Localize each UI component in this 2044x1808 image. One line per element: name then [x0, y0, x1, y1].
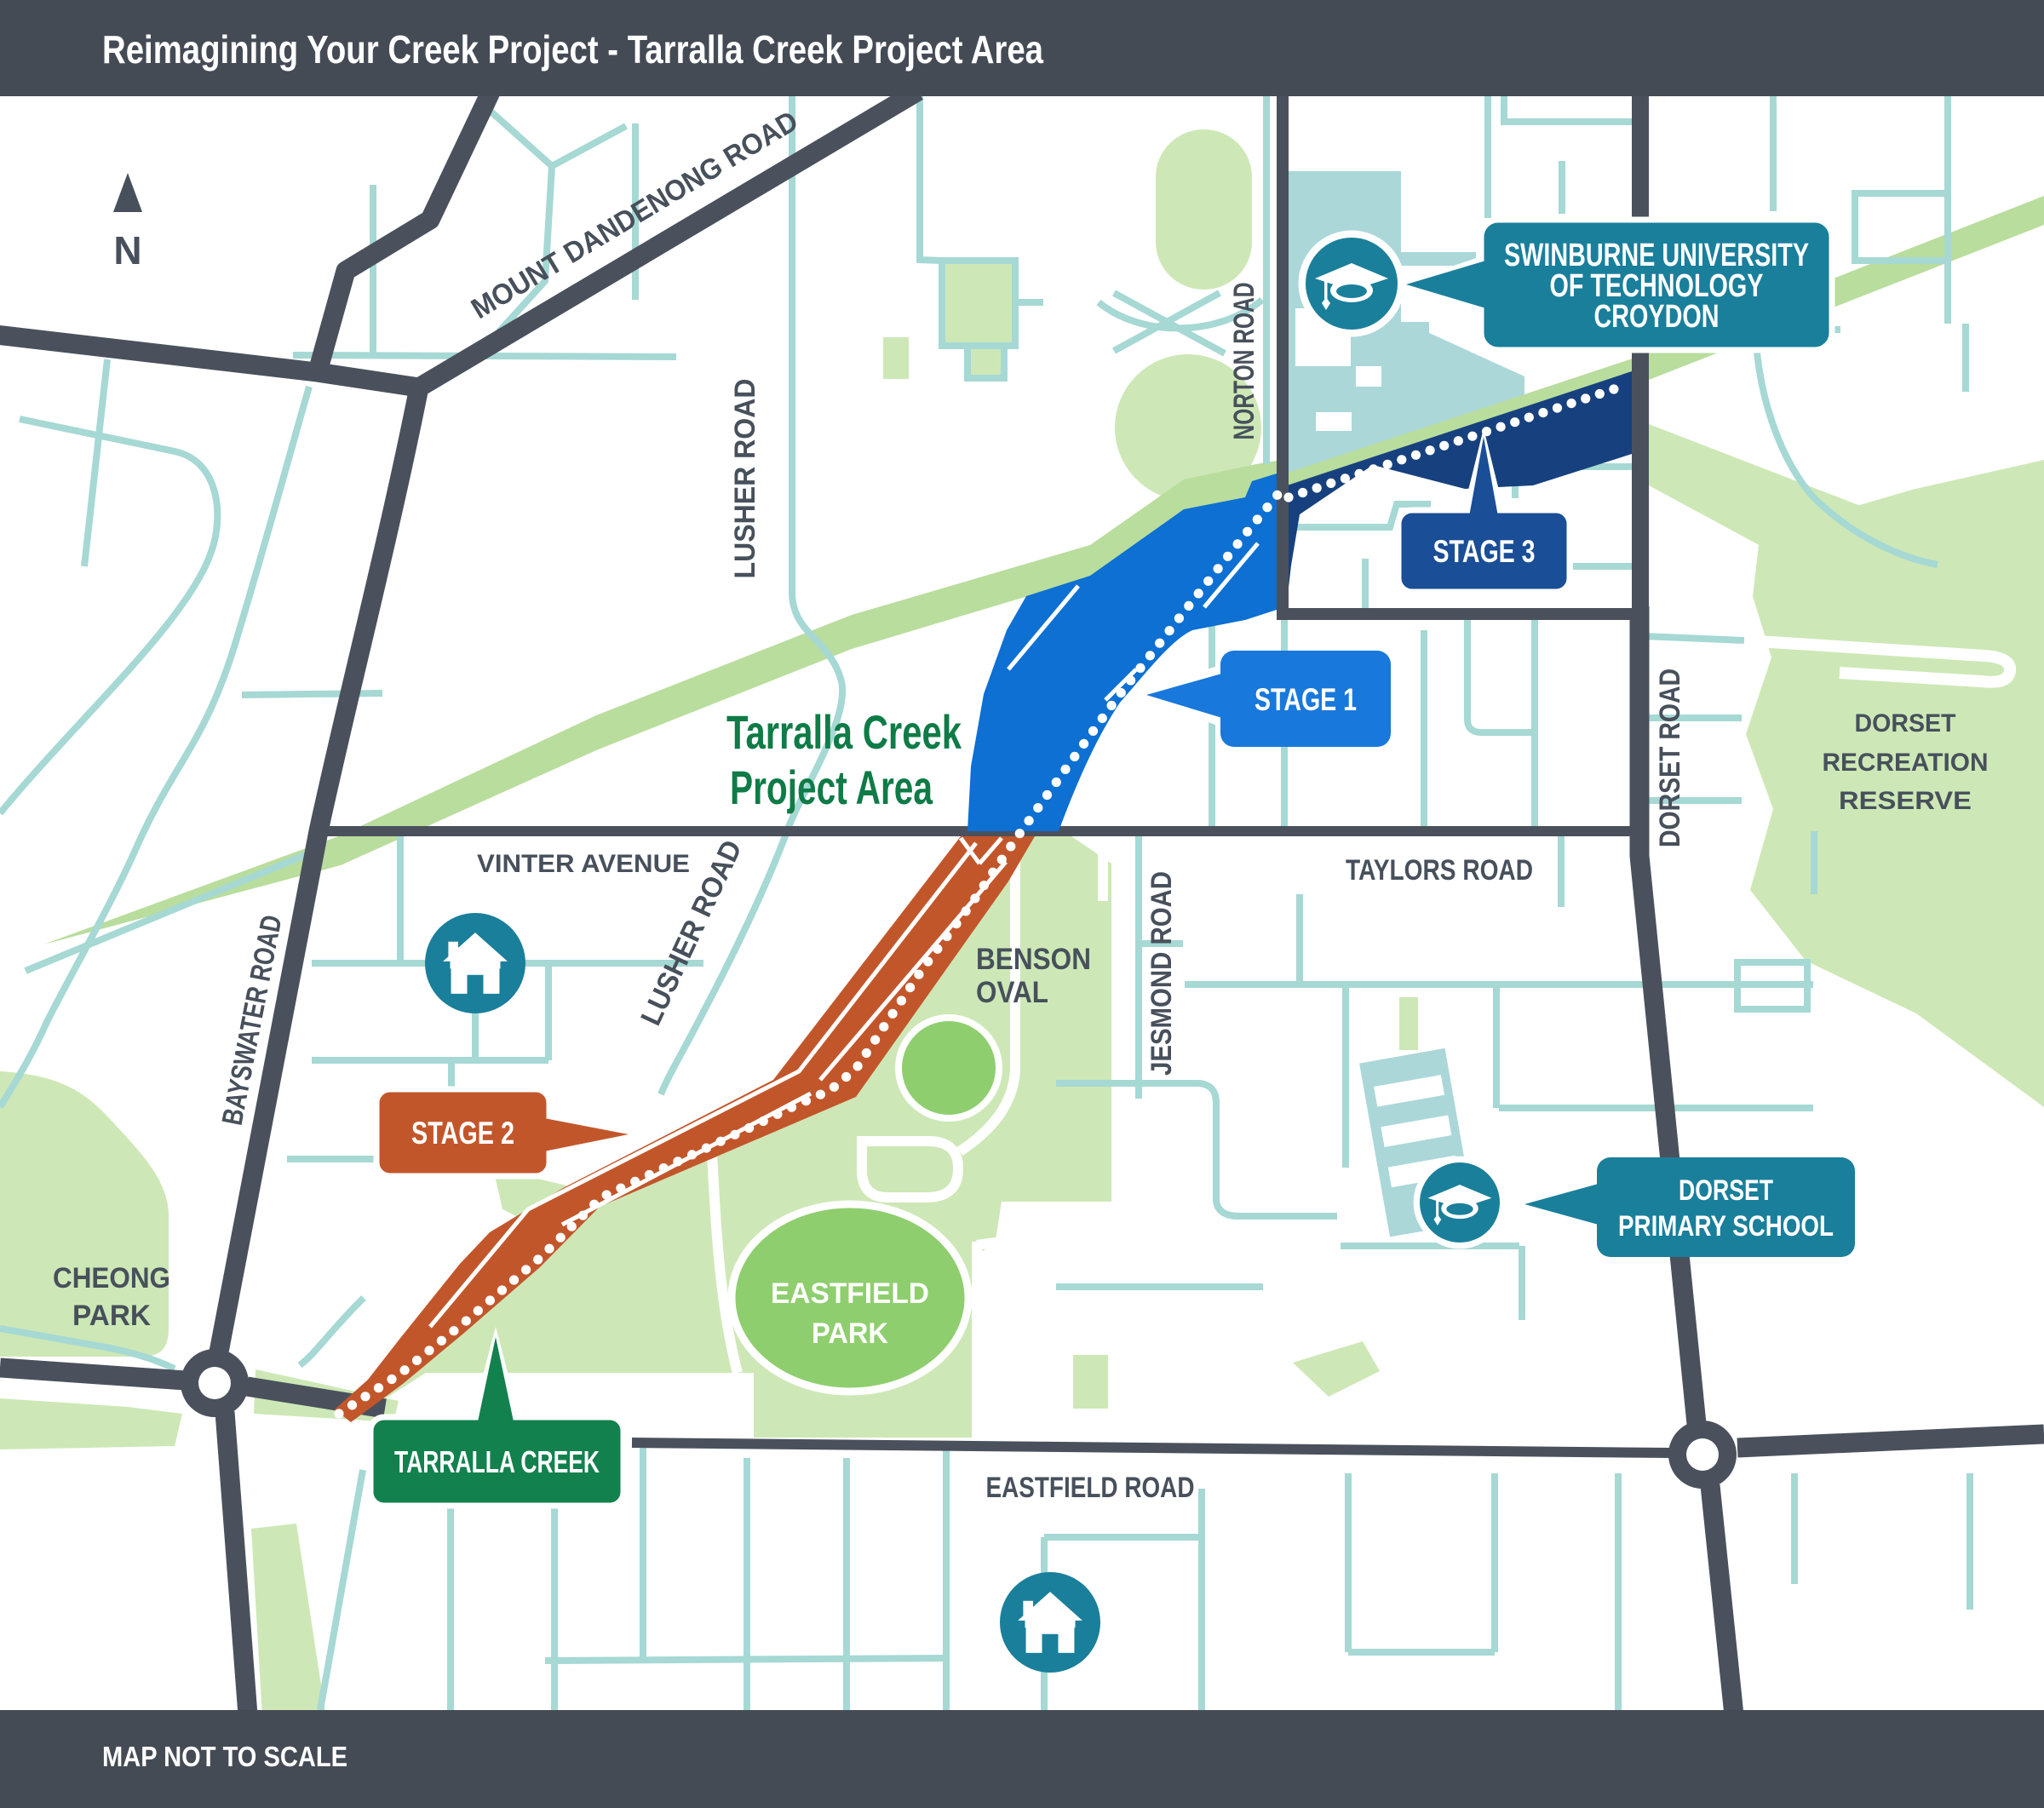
svg-text:NORTON ROAD: NORTON ROAD: [1228, 283, 1260, 440]
svg-text:OVAL: OVAL: [976, 976, 1048, 1009]
svg-text:EASTFIELD ROAD: EASTFIELD ROAD: [986, 1472, 1195, 1504]
svg-text:RESERVE: RESERVE: [1839, 787, 1972, 815]
svg-text:EASTFIELD: EASTFIELD: [771, 1277, 929, 1310]
svg-text:VINTER AVENUE: VINTER AVENUE: [477, 850, 690, 878]
svg-text:STAGE 1: STAGE 1: [1255, 682, 1357, 717]
svg-text:MAP NOT TO SCALE: MAP NOT TO SCALE: [102, 1741, 347, 1772]
svg-text:PARK: PARK: [812, 1317, 888, 1350]
svg-text:Tarralla Creek: Tarralla Creek: [726, 705, 962, 759]
svg-text:DORSET: DORSET: [1855, 709, 1956, 738]
svg-text:Reimagining Your Creek Project: Reimagining Your Creek Project - Tarrall…: [102, 27, 1043, 72]
svg-text:LUSHER ROAD: LUSHER ROAD: [729, 379, 761, 579]
svg-text:DORSET: DORSET: [1679, 1174, 1773, 1207]
svg-text:PARK: PARK: [72, 1300, 151, 1332]
svg-text:STAGE 2: STAGE 2: [411, 1116, 514, 1151]
svg-text:TAYLORS ROAD: TAYLORS ROAD: [1346, 854, 1533, 887]
svg-text:CHEONG: CHEONG: [53, 1262, 170, 1294]
svg-text:DORSET ROAD: DORSET ROAD: [1654, 669, 1686, 847]
svg-text:BENSON: BENSON: [976, 943, 1091, 976]
svg-text:CROYDON: CROYDON: [1594, 299, 1720, 335]
svg-text:PRIMARY SCHOOL: PRIMARY SCHOOL: [1618, 1210, 1834, 1243]
svg-text:STAGE 3: STAGE 3: [1433, 534, 1536, 569]
svg-text:TARRALLA CREEK: TARRALLA CREEK: [394, 1444, 600, 1479]
svg-text:N: N: [113, 228, 141, 273]
svg-text:RECREATION: RECREATION: [1823, 749, 1989, 777]
svg-text:JESMOND ROAD: JESMOND ROAD: [1145, 871, 1178, 1076]
svg-text:Project Area: Project Area: [730, 761, 933, 814]
